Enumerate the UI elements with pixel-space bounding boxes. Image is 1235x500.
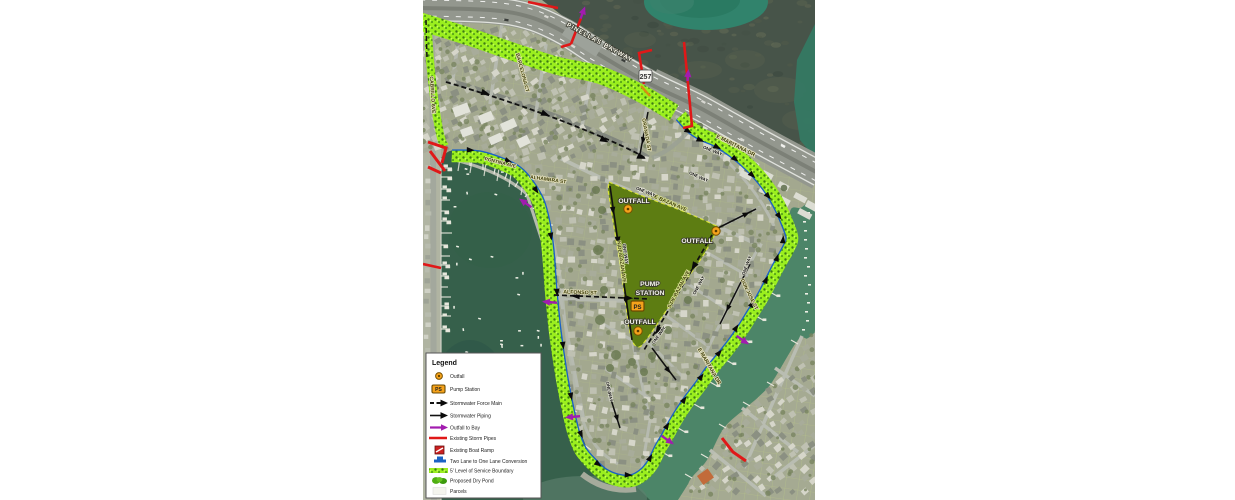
svg-text:Stormwater Piping: Stormwater Piping — [450, 413, 491, 419]
svg-text:Two Lane to One Lane Conversio: Two Lane to One Lane Conversion — [450, 459, 527, 465]
svg-text:PUMP: PUMP — [640, 281, 660, 288]
svg-text:PS: PS — [633, 305, 641, 311]
svg-text:Proposed Dry Pond: Proposed Dry Pond — [450, 478, 494, 484]
svg-text:OUTFALL: OUTFALL — [624, 319, 655, 326]
svg-text:Existing Storm Pipes: Existing Storm Pipes — [450, 436, 497, 442]
svg-text:Legend: Legend — [432, 360, 457, 367]
svg-text:ALFONSO ST: ALFONSO ST — [563, 289, 597, 296]
svg-text:Outfall to Bay: Outfall to Bay — [450, 425, 481, 431]
svg-text:OUTFALL: OUTFALL — [618, 198, 649, 205]
svg-text:257: 257 — [640, 74, 652, 81]
svg-text:5' Level of Service Boundary: 5' Level of Service Boundary — [450, 468, 514, 474]
svg-text:Parcels: Parcels — [450, 489, 467, 495]
svg-text:PS: PS — [435, 387, 442, 393]
svg-text:OUTFALL: OUTFALL — [681, 238, 712, 245]
svg-text:Stormwater Force Main: Stormwater Force Main — [450, 401, 502, 407]
svg-text:Existing Boat Ramp: Existing Boat Ramp — [450, 448, 494, 454]
svg-text:STATION: STATION — [636, 290, 665, 297]
svg-text:Outfall: Outfall — [450, 374, 464, 380]
svg-text:Pump Station: Pump Station — [450, 387, 480, 393]
